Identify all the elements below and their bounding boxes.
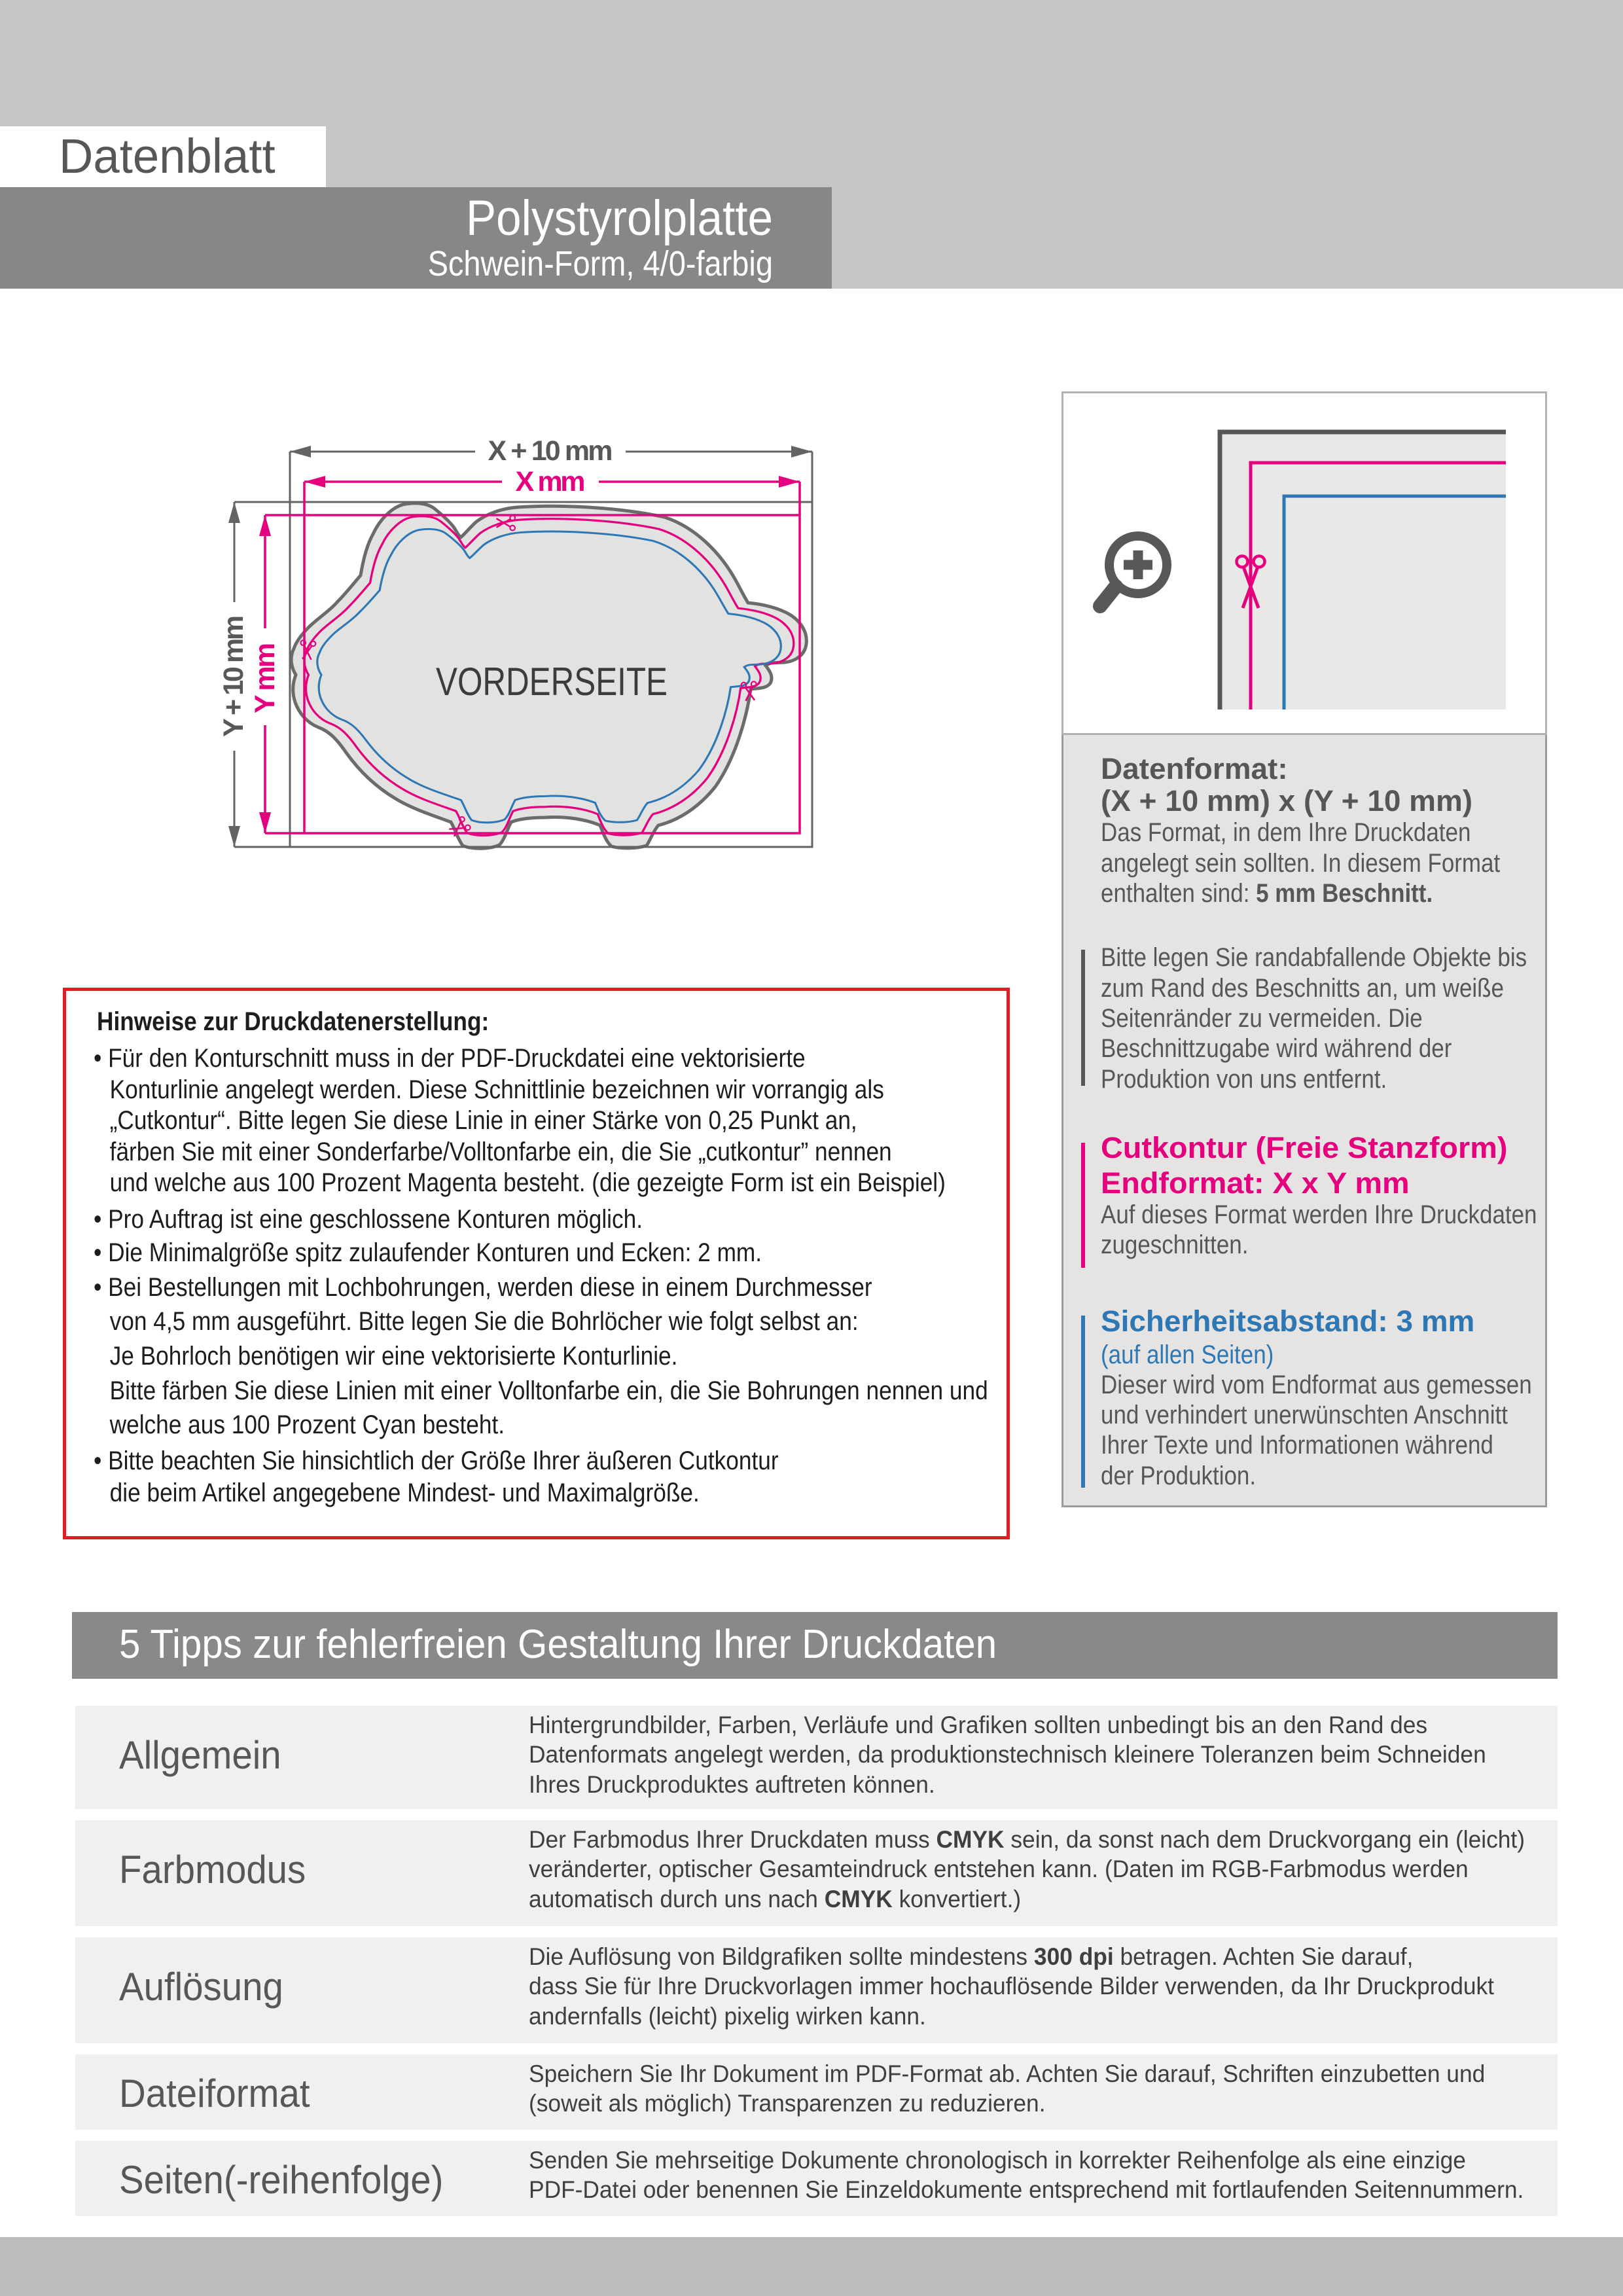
svg-text:X mm: X mm (516, 466, 586, 497)
svg-text:Y mm: Y mm (249, 643, 281, 713)
svg-text:Y + 10 mm: Y + 10 mm (218, 615, 249, 737)
svg-text:X + 10 mm: X + 10 mm (488, 435, 613, 467)
svg-text:VORDERSEITE: VORDERSEITE (436, 660, 668, 704)
